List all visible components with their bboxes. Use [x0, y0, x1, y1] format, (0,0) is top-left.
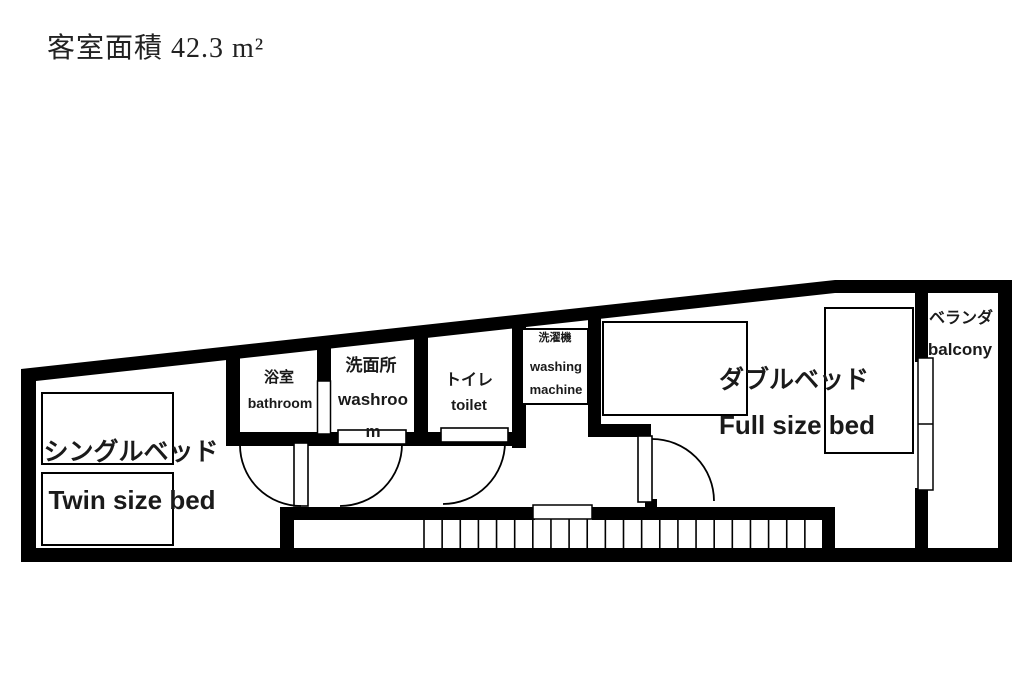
- stair-door-leaf: [638, 436, 652, 502]
- balcony-label-jp: ベランダ: [929, 310, 993, 328]
- single-bed-label-jp: シングルベッド: [43, 438, 218, 467]
- toilet-label-jp: トイレ: [445, 372, 493, 390]
- floorplan-canvas: 客室面積 42.3 m²: [0, 0, 1024, 683]
- wall-washroom-toilet: [414, 327, 428, 446]
- wall-laundry-bedroom: [588, 307, 601, 437]
- wall-bedroom-bathroom: [226, 349, 240, 446]
- toilet-label-en: toilet: [451, 397, 487, 414]
- washing-machine-label-en: washing machine: [523, 355, 589, 401]
- balcony-label-en: balcony: [928, 340, 992, 360]
- wall-above-stair-door: [588, 424, 651, 437]
- floorplan-svg: [0, 0, 1024, 683]
- washroom-label-jp: 洗面所: [346, 356, 397, 376]
- bathroom-label-jp: 浴室: [264, 369, 294, 386]
- washroom-label-en: washroom: [334, 384, 412, 448]
- wall-stair-top-left: [280, 507, 535, 520]
- wall-stair-top-right: [592, 507, 835, 520]
- bathroom-washroom-doorway: [318, 381, 331, 434]
- washing-machine-label-jp: 洗濯機: [539, 332, 572, 345]
- bathroom-label-en: bathroom: [248, 395, 313, 411]
- stair-railing: [533, 505, 592, 519]
- wall-bathroom-washroom-upper: [317, 338, 331, 384]
- wall-balcony-lower: [915, 488, 928, 548]
- single-bed-label-en: Twin size bed: [48, 486, 215, 516]
- bathroom-door-leaf: [294, 443, 308, 506]
- wall-balcony-upper: [915, 290, 928, 362]
- double-bed-label-jp: ダブルベッド: [719, 366, 869, 395]
- wall-stair-right: [822, 507, 835, 548]
- toilet-door-leaf: [441, 428, 508, 442]
- double-bed-label-en: Full size bed: [719, 411, 875, 441]
